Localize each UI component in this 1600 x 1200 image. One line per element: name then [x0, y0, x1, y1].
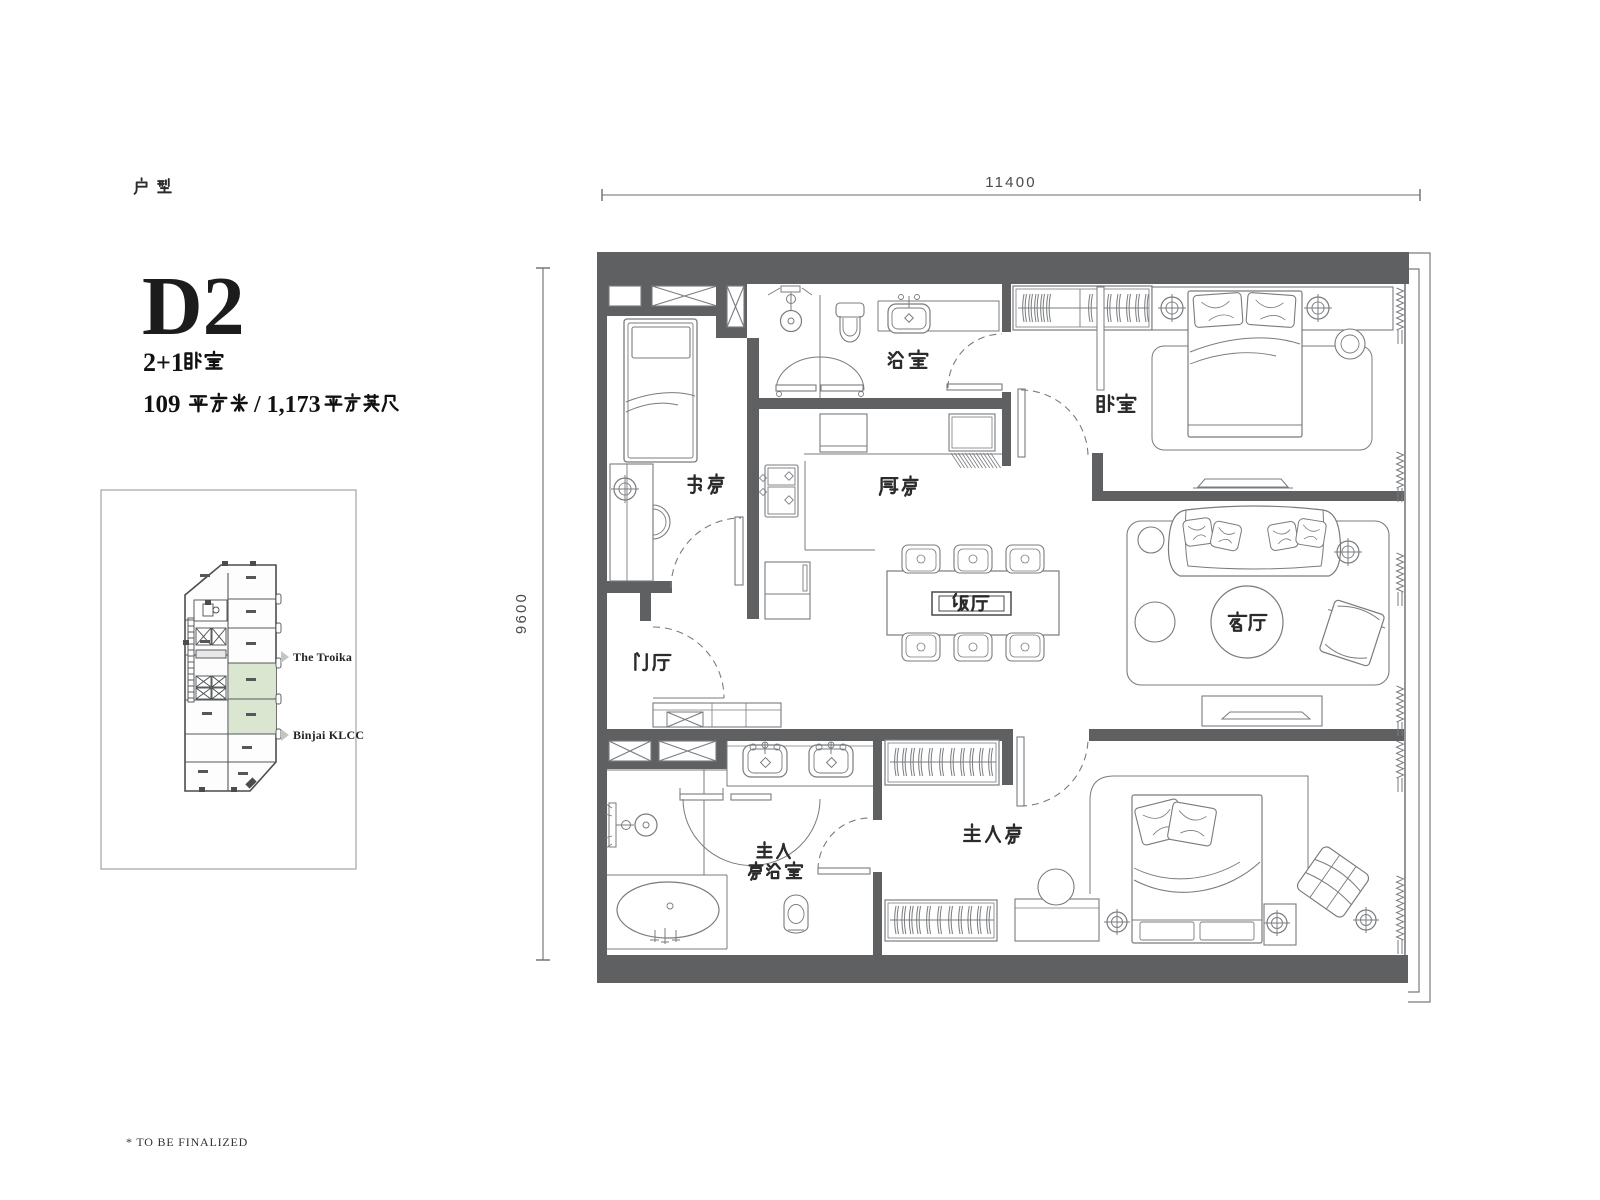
svg-text:109: 109: [143, 391, 181, 418]
svg-text:D2: D2: [142, 260, 245, 353]
svg-text:11400: 11400: [985, 174, 1037, 191]
svg-text:The Troika: The Troika: [293, 650, 352, 664]
svg-text:* TO BE FINALIZED: * TO BE FINALIZED: [126, 1135, 248, 1149]
svg-text:9600: 9600: [513, 592, 530, 634]
svg-text:2+1: 2+1: [143, 348, 184, 377]
svg-text:/ 1,173: / 1,173: [253, 392, 321, 418]
svg-text:Binjai KLCC: Binjai KLCC: [293, 728, 364, 742]
